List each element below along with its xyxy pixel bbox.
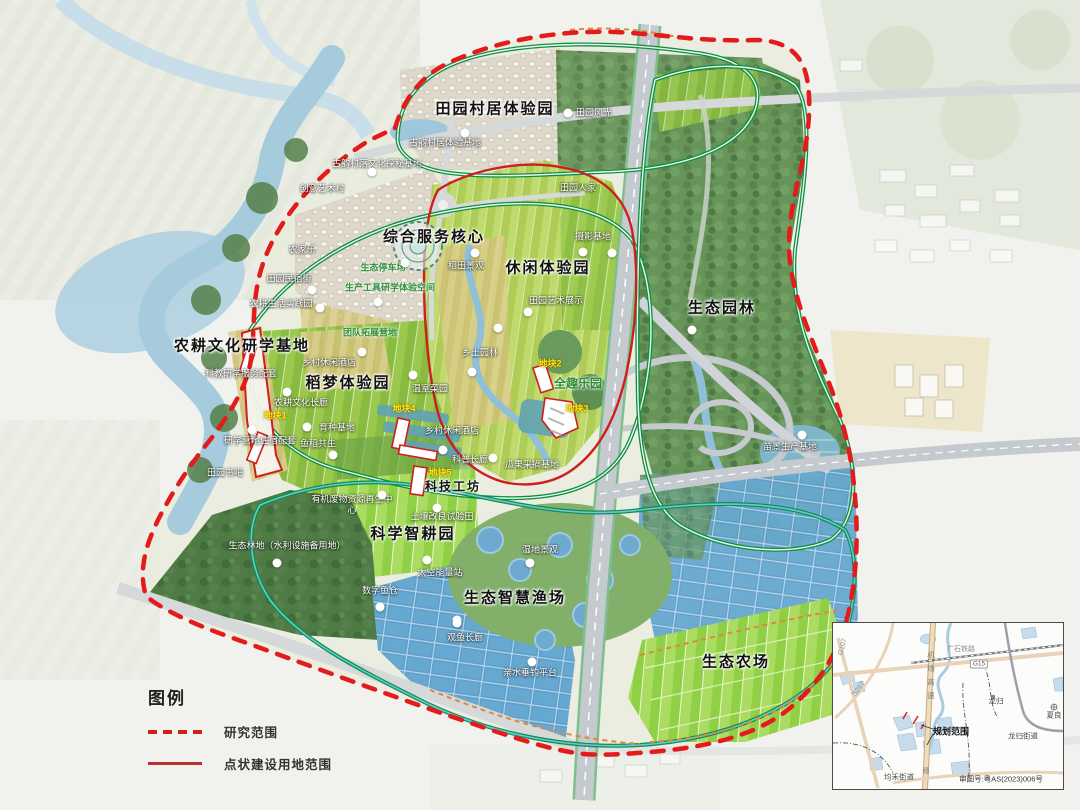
inset-label: 广石铁路 xyxy=(947,644,975,654)
inset-label: 机场高速 xyxy=(926,651,937,705)
planning-map-page: 田园村居体验园综合服务核心休闲体验园生态园林农耕文化研学基地稻梦体验园科学智耕园… xyxy=(0,0,1080,810)
legend-title: 图例 xyxy=(148,684,332,709)
legend-item-label: 点状建设用地范围 xyxy=(224,754,332,773)
inset-label: G15 xyxy=(970,660,988,669)
inset-label: G107 xyxy=(837,638,848,656)
planning-scope-label: 规划范围 xyxy=(933,725,969,738)
legend-item-label: 研究范围 xyxy=(224,722,278,741)
legend-item-research-scope: 研究范围 xyxy=(148,722,332,741)
inset-label: 审图号:粤AS(2023)006号 xyxy=(959,774,1043,785)
legend-item-construction-scope: 点状建设用地范围 xyxy=(148,754,332,773)
dashed-line-sample xyxy=(148,730,202,734)
inset-label-layer: 广石铁路G15G107S267机场高速穗龙归龙归街道夏良规划范围均禾街道审图号:… xyxy=(833,623,1063,789)
inset-label: 均禾街道 xyxy=(884,772,914,783)
service-core-emblem xyxy=(394,222,442,270)
inset-label: S267 xyxy=(851,680,866,697)
inset-label: 龙归 xyxy=(989,696,1004,707)
location-inset-map: 广石铁路G15G107S267机场高速穗龙归龙归街道夏良规划范围均禾街道审图号:… xyxy=(832,622,1064,790)
inset-label: 龙归街道 xyxy=(1008,731,1038,742)
inset-label: 夏良 xyxy=(1047,710,1062,721)
legend: 图例 研究范围 点状建设用地范围 xyxy=(148,684,332,773)
solid-line-sample xyxy=(148,762,202,765)
inset-label: 穗 xyxy=(923,766,930,776)
